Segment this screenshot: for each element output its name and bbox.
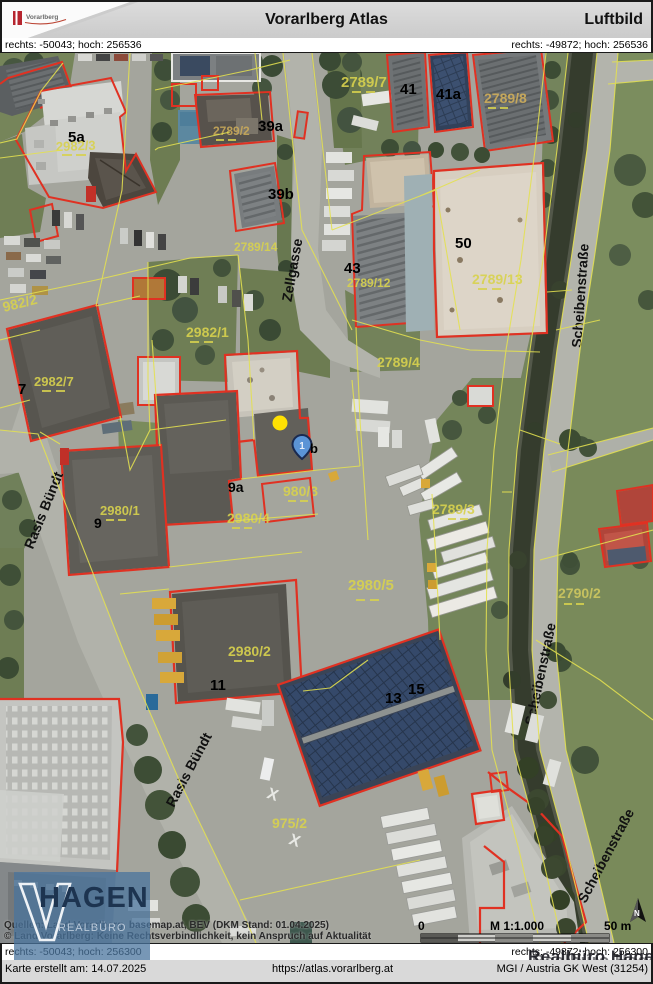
svg-text:2980/5: 2980/5 — [348, 577, 394, 594]
svg-text:2789/14: 2789/14 — [234, 240, 278, 254]
svg-text:39a: 39a — [258, 118, 284, 135]
svg-text:43: 43 — [344, 260, 361, 277]
svg-text:2982/3: 2982/3 — [56, 138, 96, 154]
svg-text:9a: 9a — [228, 479, 244, 495]
svg-text:2789/4: 2789/4 — [377, 354, 420, 370]
svg-text:0: 0 — [418, 919, 425, 933]
svg-text:2789/3: 2789/3 — [432, 501, 475, 517]
svg-text:2982/1: 2982/1 — [186, 324, 229, 340]
svg-text:50: 50 — [455, 235, 472, 252]
svg-text:11: 11 — [210, 677, 226, 694]
svg-text:2789/13: 2789/13 — [472, 271, 523, 287]
svg-text:b: b — [310, 441, 318, 456]
svg-text:2789/7: 2789/7 — [341, 74, 387, 91]
svg-text:39b: 39b — [268, 186, 294, 203]
svg-text:N: N — [634, 909, 640, 918]
svg-text:7: 7 — [18, 381, 26, 398]
svg-text:2789/2: 2789/2 — [213, 124, 250, 138]
svg-text:15: 15 — [408, 681, 425, 698]
svg-text:2980/1: 2980/1 — [100, 503, 140, 518]
svg-text:41a: 41a — [436, 86, 462, 103]
svg-text:1: 1 — [299, 441, 305, 452]
svg-text:2789/8: 2789/8 — [484, 90, 527, 106]
svg-text:2790/2: 2790/2 — [558, 585, 601, 601]
svg-text:2789/12: 2789/12 — [347, 276, 391, 290]
svg-text:975/2: 975/2 — [272, 815, 307, 831]
svg-text:13: 13 — [385, 690, 402, 707]
svg-text:2982/7: 2982/7 — [34, 374, 74, 389]
svg-text:M 1:1.000: M 1:1.000 — [490, 919, 544, 933]
svg-text:41: 41 — [400, 81, 417, 98]
svg-text:50 m: 50 m — [604, 919, 631, 933]
svg-text:2980/2: 2980/2 — [228, 643, 271, 659]
